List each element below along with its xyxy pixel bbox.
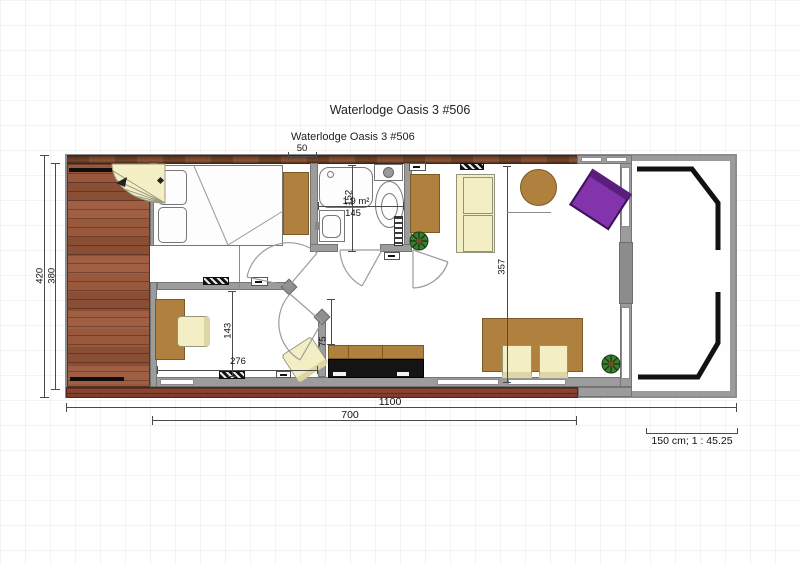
- dim-tick: [157, 366, 158, 374]
- dim-tick: [40, 155, 49, 156]
- dim-tick: [288, 152, 289, 160]
- dim-label-145: 145: [338, 209, 368, 219]
- dim-label-75: 75: [318, 330, 328, 354]
- dim-line-50: [288, 156, 317, 157]
- bow-railing: [637, 169, 718, 377]
- dim-label-143: 143: [223, 316, 233, 346]
- dim-label-357: 357: [497, 252, 507, 282]
- dim-tick: [51, 389, 60, 390]
- dim-tick: [348, 251, 356, 252]
- scale-bar-label: 150 cm; 1 : 45.25: [644, 436, 740, 447]
- dim-tick: [228, 376, 236, 377]
- living-door-swing: [413, 250, 448, 288]
- dim-label-380: 380: [47, 261, 57, 291]
- bed-blanket-fold: [194, 166, 283, 245]
- dim-tick: [503, 382, 511, 383]
- scale-bar-tick: [737, 428, 738, 434]
- dim-label-1100: 1100: [370, 397, 410, 408]
- dim-line-276: [157, 370, 318, 371]
- interior-line: [507, 212, 551, 213]
- dim-tick: [316, 152, 317, 160]
- scale-bar-tick: [646, 428, 647, 434]
- bath-door-swing: [340, 250, 382, 286]
- dim-tick: [317, 366, 318, 374]
- dim-tick: [318, 202, 319, 210]
- bedroom-door-swing: [247, 243, 317, 286]
- dim-tick: [736, 403, 737, 412]
- spiral-staircase: [112, 164, 165, 203]
- dim-tick: [403, 202, 404, 210]
- dim-tick: [66, 403, 67, 412]
- plan-drawing-overlay: [0, 0, 800, 565]
- dim-tick: [576, 416, 577, 425]
- scale-bar-line: [646, 433, 738, 434]
- dim-tick: [228, 291, 236, 292]
- dim-line-75: [331, 299, 332, 345]
- dim-label-420: 420: [35, 261, 45, 291]
- dim-tick: [40, 397, 49, 398]
- dim-label-276: 276: [222, 357, 254, 367]
- dim-tick: [503, 166, 511, 167]
- floor-plan-canvas: Waterlodge Oasis 3 #506 Waterlodge Oasis…: [0, 0, 800, 565]
- dim-tick: [152, 416, 153, 425]
- potted-plant-icon: [602, 355, 620, 373]
- potted-plant-icon: [410, 232, 428, 250]
- dim-tick: [327, 299, 335, 300]
- door-swings: [247, 243, 448, 360]
- dim-label-700: 700: [332, 410, 368, 421]
- dim-tick: [348, 165, 356, 166]
- dim-label-50: 50: [290, 144, 314, 154]
- dim-tick: [51, 163, 60, 164]
- interior-line: [239, 246, 240, 290]
- office-door-swing: [279, 294, 322, 360]
- bath-area-label: 1,9 m²: [336, 197, 376, 207]
